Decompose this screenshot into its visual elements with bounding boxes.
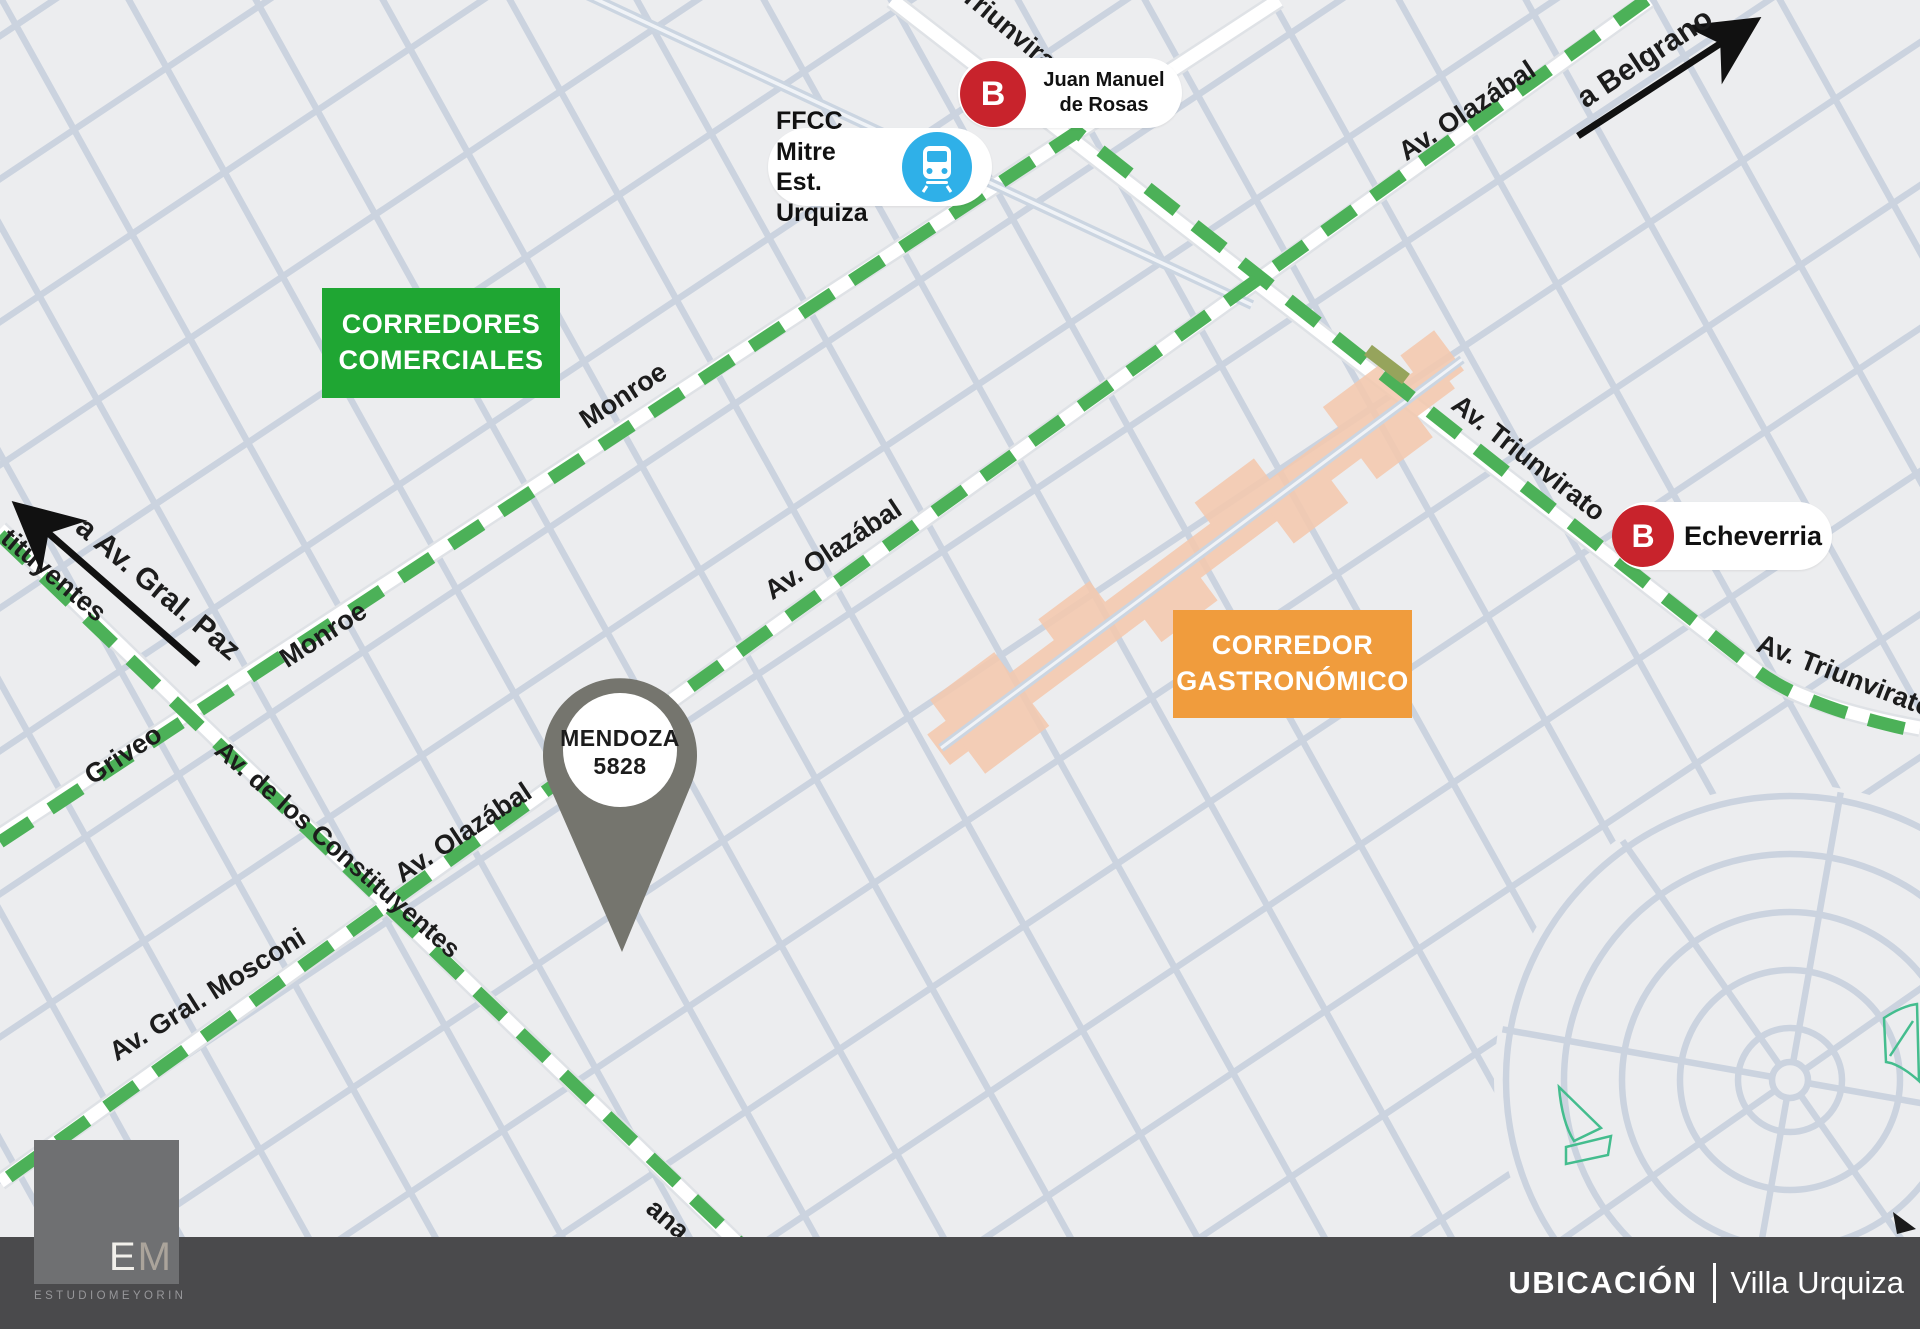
footer-neighborhood-title: Villa Urquiza (1731, 1265, 1904, 1301)
logo-letter: E (109, 1235, 138, 1279)
train-station-name: FFCC Mitre (776, 106, 906, 167)
map-slide: tituyentes Monroe Monroe Griveo Av. de l… (0, 0, 1920, 1329)
subway-line-b-icon: B (1612, 505, 1674, 567)
station-echeverria: B Echeverria (1612, 502, 1832, 570)
zone-label-line: CORREDOR (1212, 628, 1374, 664)
footer-divider (1713, 1263, 1716, 1303)
train-icon (902, 132, 972, 202)
zone-label-line: COMERCIALES (338, 343, 543, 379)
logo-square: EM (34, 1140, 179, 1284)
train-station-name: Est. Urquiza (776, 167, 906, 228)
zone-corredor-gastronomico: CORREDOR GASTRONÓMICO (1173, 610, 1412, 718)
logo-letter: M (138, 1235, 173, 1279)
zone-label-line: CORREDORES (342, 307, 541, 343)
station-name: Juan Manuel (1043, 68, 1164, 93)
pin-street: MENDOZA (560, 725, 680, 751)
logo-studio-name: ESTUDIOMEYORIN (34, 1290, 179, 1302)
footer-bar: UBICACIÓN Villa Urquiza (0, 1237, 1920, 1329)
zone-label-line: GASTRONÓMICO (1176, 664, 1409, 700)
station-name: de Rosas (1060, 93, 1149, 118)
station-juan-manuel-de-rosas: B Juan Manuel de Rosas (958, 58, 1182, 128)
studio-logo: EM ESTUDIOMEYORIN (34, 1140, 179, 1302)
subway-line-b-icon: B (960, 61, 1026, 127)
station-name: Echeverria (1678, 502, 1828, 570)
zone-corredores-comerciales: CORREDORES COMERCIALES (322, 288, 560, 398)
station-ffcc-mitre-urquiza: FFCC Mitre Est. Urquiza (768, 128, 992, 206)
pin-number: 5828 (593, 753, 646, 779)
footer-section-label: UBICACIÓN (1508, 1265, 1697, 1301)
